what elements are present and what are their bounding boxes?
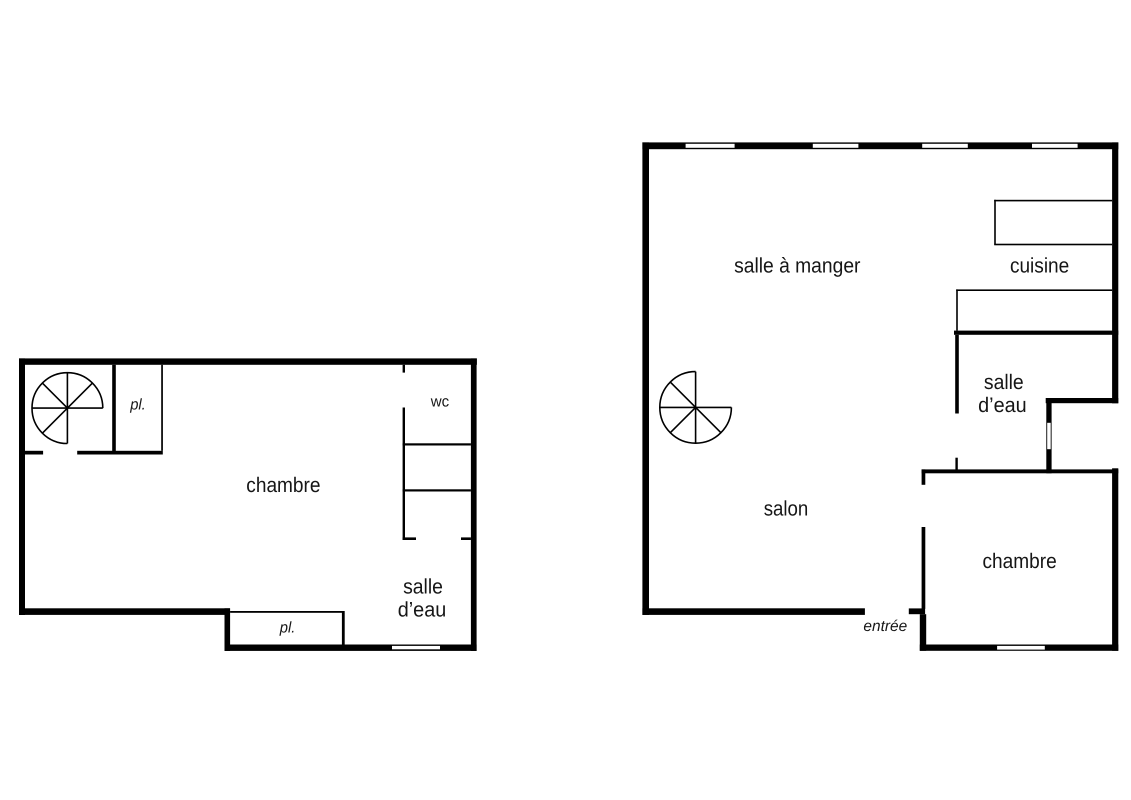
svg-text:entrée: entrée — [863, 618, 907, 635]
svg-text:chambre: chambre — [983, 550, 1057, 573]
svg-text:cuisine: cuisine — [1010, 254, 1069, 277]
svg-text:salon: salon — [764, 498, 809, 521]
svg-text:salle: salle — [403, 576, 443, 599]
svg-text:d’eau: d’eau — [978, 394, 1027, 417]
svg-text:pl.: pl. — [279, 620, 296, 637]
svg-text:d’eau: d’eau — [398, 599, 447, 622]
svg-text:pl.: pl. — [129, 396, 146, 413]
svg-text:salle à manger: salle à manger — [734, 255, 860, 278]
svg-text:chambre: chambre — [246, 474, 320, 497]
svg-text:salle: salle — [984, 371, 1024, 394]
svg-text:wc: wc — [430, 394, 450, 411]
